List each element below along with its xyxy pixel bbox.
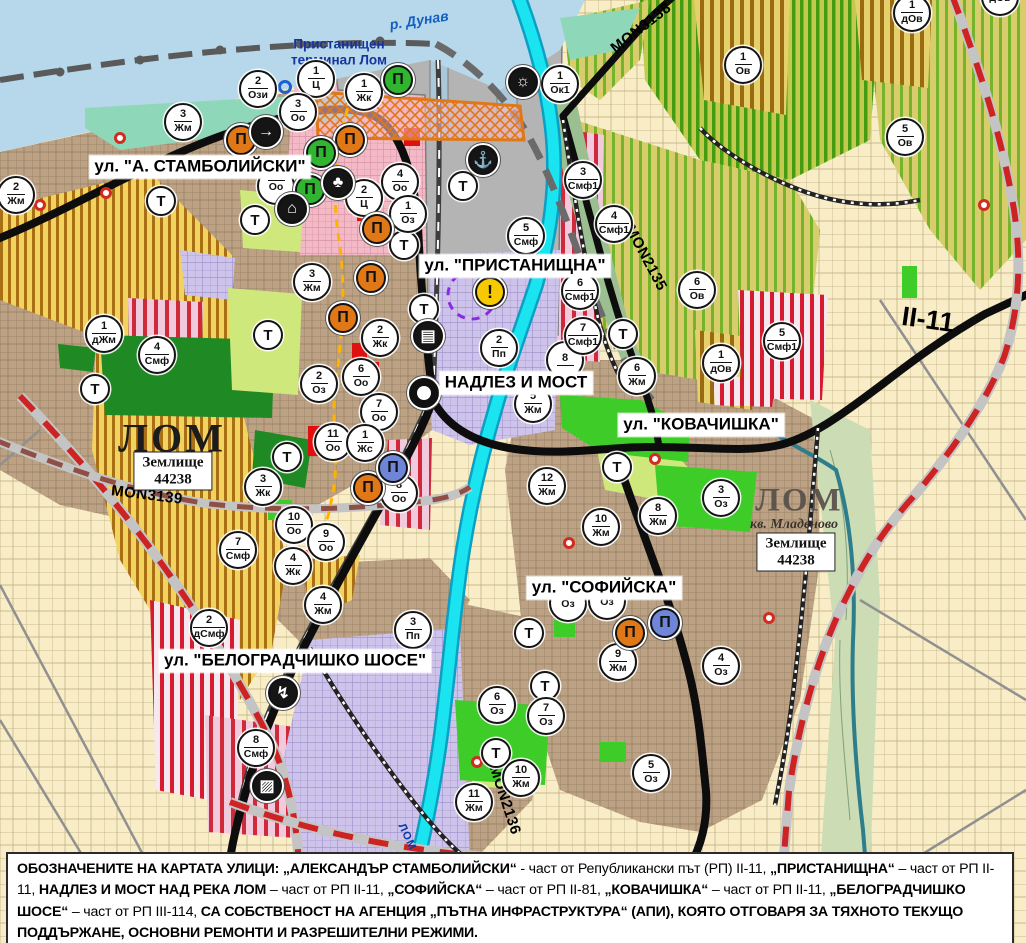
zone-number: 12	[541, 473, 553, 484]
zone-code: дОв	[901, 12, 922, 26]
zone-code: Оо	[391, 492, 408, 506]
zone-number: 2	[316, 371, 322, 382]
zemlishte-box: Землище44238	[133, 452, 212, 491]
zone-code: Жм	[465, 801, 482, 815]
terrain-t-marker: Т	[253, 320, 283, 350]
zone-marker: 3Жм	[164, 103, 202, 141]
note-segment: „КОВАЧИШКА“	[604, 882, 708, 898]
zone-number: 5	[523, 223, 529, 234]
zone-code: Оо	[268, 180, 285, 194]
bus-icon: ▤	[413, 321, 443, 351]
red-dot-icon	[563, 537, 575, 549]
terrain-t-marker: Т	[448, 171, 478, 201]
landmark-icon: Π	[650, 608, 680, 638]
zone-number: 1	[740, 52, 746, 63]
note-segment: – част от РП II-11,	[708, 882, 829, 898]
zone-marker: 6Оз	[478, 686, 516, 724]
key-icon: →	[251, 117, 281, 147]
zone-code: Оо	[318, 541, 335, 555]
zone-marker: 3Пп	[394, 611, 432, 649]
zone-number: 3	[580, 167, 586, 178]
zone-marker: 12Жм	[528, 467, 566, 505]
zone-marker: 5Смф	[507, 217, 545, 255]
zone-code: Жм	[314, 604, 331, 618]
terrain-t-marker: Т	[481, 738, 511, 768]
warning-icon: !	[475, 277, 505, 307]
zone-marker: 3Оо	[279, 93, 317, 131]
trefoil-icon: ♣	[323, 168, 353, 198]
zone-number: 5	[902, 124, 908, 135]
zone-marker: 5Оз	[632, 754, 670, 792]
note-segment: НАДЛЕЗ И МОСТ НАД РЕКА ЛОМ	[39, 882, 266, 898]
zone-marker: 4Жк	[274, 547, 312, 585]
zone-number: 1	[718, 350, 724, 361]
zone-marker: 1дЖм	[85, 315, 123, 353]
zone-marker: 9Жм	[599, 643, 637, 681]
zemlishte-box: Землище44238	[756, 533, 835, 572]
zone-code: Оз	[538, 715, 555, 729]
zone-marker: 2Оз	[300, 365, 338, 403]
zone-number: 5	[779, 328, 785, 339]
zone-marker: 3Оз	[702, 479, 740, 517]
terrain-t-marker: Т	[602, 452, 632, 482]
zone-marker: 1дОв	[702, 344, 740, 382]
street-label: ул. "БЕЛОГРАДЧИШКО ШОСЕ"	[159, 650, 431, 673]
zone-code: Жк	[356, 91, 373, 105]
terrain-t-marker: Т	[608, 319, 638, 349]
zone-code: Смф1	[767, 340, 797, 354]
zone-marker: 2Пп	[480, 329, 518, 367]
zone-marker: 1Ц	[297, 60, 335, 98]
zone-marker: 6Оо	[342, 358, 380, 396]
landmark-icon: Π	[335, 125, 365, 155]
zone-number: 9	[615, 649, 621, 660]
zone-number: 6	[577, 278, 583, 289]
zone-marker: 6Смф1	[561, 272, 599, 310]
zone-code	[557, 365, 574, 367]
landmark-icon: Π	[356, 263, 386, 293]
zone-code: Пп	[405, 629, 422, 643]
note-segment: „СОФИЙСКА“	[387, 882, 482, 898]
terrain-t-marker: Т	[80, 374, 110, 404]
legend-note: ОБОЗНАЧЕНИТЕ НА КАРТАТА УЛИЦИ: „АЛЕКСАНД…	[6, 852, 1014, 943]
zone-code: Ов	[735, 64, 752, 78]
zone-code: Жм	[592, 526, 609, 540]
zone-number: 7	[580, 323, 586, 334]
zone-number: 4	[320, 592, 326, 603]
zone-number: 1	[362, 430, 368, 441]
zone-number: 6	[358, 364, 364, 375]
zone-code: Оо	[290, 111, 307, 125]
zone-code: Ов	[897, 136, 914, 150]
zone-number: 2	[206, 615, 212, 626]
sun-icon: ☼	[508, 67, 538, 97]
zone-marker: 4Смф	[138, 336, 176, 374]
red-dot-icon	[114, 132, 126, 144]
zone-code: дОв	[989, 0, 1010, 4]
zone-number: 2	[496, 335, 502, 346]
zone-marker: 4Жм	[304, 586, 342, 624]
zone-code: Жк	[285, 565, 302, 579]
zone-code: Оз	[311, 383, 328, 397]
zone-marker: 4Смф1	[595, 205, 633, 243]
zone-number: 7	[376, 399, 382, 410]
zone-code: Ц	[356, 197, 373, 211]
zone-code: Пп	[491, 347, 508, 361]
landmark-icon: Π	[328, 303, 358, 333]
zone-code: Смф1	[568, 179, 598, 193]
zone-number: 4	[611, 211, 617, 222]
zone-number: 3	[180, 109, 186, 120]
zone-number: 7	[543, 703, 549, 714]
red-dot-icon	[100, 187, 112, 199]
zone-code: Смф1	[565, 290, 595, 304]
zone-marker: 1Оз	[389, 195, 427, 233]
zone-marker: 2Жк	[361, 319, 399, 357]
zone-number: 6	[634, 363, 640, 374]
zone-number: 5	[648, 760, 654, 771]
zone-code: Смф	[514, 235, 538, 249]
landmark-icon: Π	[615, 618, 645, 648]
zoning-map: 2Жм3Жм2Ози1Ц1Жк3Оо4Оо2Ц1ОзОо1дЖм4Смф3Жм2…	[0, 0, 1026, 943]
zone-marker: 5Смф1	[763, 322, 801, 360]
terrain-t-marker: Т	[389, 230, 419, 260]
railcross-icon: ▨	[252, 771, 282, 801]
zone-code: Смф1	[568, 335, 598, 349]
zone-marker: 6Ов	[678, 271, 716, 309]
zone-code: Оз	[489, 704, 506, 718]
note-segment: - част от Републикански път (РП) II-11,	[517, 861, 770, 877]
zone-number: 3	[309, 269, 315, 280]
zone-marker: 1Жс	[346, 424, 384, 462]
zone-code: Ц	[308, 78, 325, 92]
zone-code: Жм	[524, 403, 541, 417]
landmark-icon: Π	[353, 473, 383, 503]
zone-number: 2	[377, 325, 383, 336]
zone-marker: 8Смф	[237, 729, 275, 767]
zone-number: 2	[13, 182, 19, 193]
zone-marker: 7Смф1	[564, 317, 602, 355]
zone-code: Ок1	[550, 83, 569, 97]
zone-number: 4	[397, 169, 403, 180]
red-dot-icon	[649, 453, 661, 465]
zone-code: Смф	[145, 354, 169, 368]
terrain-t-marker: Т	[409, 294, 439, 324]
zone-code: Смф	[226, 549, 250, 563]
zone-code: Оз	[713, 497, 730, 511]
note-segment: ОБОЗНАЧЕНИТЕ НА КАРТАТА УЛИЦИ: „АЛЕКСАНД…	[17, 861, 517, 877]
blue-ring-icon	[278, 80, 292, 94]
zone-code: Жм	[609, 661, 626, 675]
note-segment: – част от РП II-81,	[482, 882, 604, 898]
street-label: ул. "СОФИЙСКА"	[527, 577, 682, 600]
red-dot-icon	[34, 199, 46, 211]
zone-code: Жс	[357, 442, 374, 456]
zone-number: 8	[562, 353, 568, 364]
zone-marker: 1Ок1	[541, 65, 579, 103]
landmark-icon: Π	[383, 65, 413, 95]
zone-code: Ози	[248, 88, 268, 102]
zone-number: 3	[410, 617, 416, 628]
zone-code: Смф	[244, 747, 268, 761]
zone-marker: 1Жк	[345, 73, 383, 111]
zone-code: Жм	[538, 485, 555, 499]
street-label: ул. "А. СТАМБОЛИЙСКИ"	[89, 156, 310, 179]
zone-marker: 6Жм	[618, 357, 656, 395]
zone-number: 7	[235, 537, 241, 548]
zone-code: Оо	[325, 441, 342, 455]
zone-code: дЖм	[92, 333, 116, 347]
zone-number: 1	[361, 79, 367, 90]
zone-code: Оо	[392, 181, 409, 195]
city-label-lom-mladenovo: ЛОМ	[755, 483, 842, 520]
note-segment: „ПРИСТАНИЩНА“	[770, 861, 895, 877]
zone-code: Жм	[7, 194, 24, 208]
zone-marker: 3Смф1	[564, 161, 602, 199]
zone-code: Оз	[400, 213, 417, 227]
zone-number: 1	[909, 0, 915, 11]
zone-number: 4	[718, 653, 724, 664]
zone-number: 10	[288, 512, 300, 523]
landmark-icon: Π	[362, 214, 392, 244]
street-label: НАДЛЕЗ И МОСТ	[440, 372, 593, 395]
zone-marker: 8Жм	[639, 497, 677, 535]
zone-code: дСмф	[193, 627, 224, 641]
zone-code: Ов	[689, 289, 706, 303]
quarter-label-mladenovo: кв. Младеново	[750, 517, 838, 533]
zone-marker: 4Оз	[702, 647, 740, 685]
zone-code: Оо	[286, 524, 303, 538]
zone-marker: 1Ов	[724, 46, 762, 84]
zone-number: 11	[327, 429, 339, 440]
red-dot-icon	[763, 612, 775, 624]
zone-marker: 3Жм	[293, 263, 331, 301]
mountain-icon: ⌂	[277, 194, 307, 224]
zone-code: Жм	[628, 375, 645, 389]
zone-marker: 2Ози	[239, 70, 277, 108]
zone-marker: 10Жм	[582, 508, 620, 546]
anchor-icon: ⚓	[468, 145, 498, 175]
zone-number: 8	[253, 735, 259, 746]
zone-number: 1	[101, 321, 107, 332]
terrain-t-marker: Т	[240, 205, 270, 235]
terrain-t-marker: Т	[146, 186, 176, 216]
zone-number: 10	[515, 765, 527, 776]
zone-number: 4	[154, 342, 160, 353]
note-segment: – част от РП II-11,	[266, 882, 387, 898]
zone-code: Жм	[303, 281, 320, 295]
zone-marker: 5Ов	[886, 118, 924, 156]
zone-code: Жм	[174, 121, 191, 135]
lightning-icon: ↯	[268, 678, 298, 708]
zone-marker: 7Оз	[527, 697, 565, 735]
zone-marker: 10Жм	[502, 759, 540, 797]
street-label: ул. "ПРИСТАНИЩНА"	[419, 255, 610, 278]
terrain-t-marker: Т	[514, 618, 544, 648]
zone-code: Смф1	[599, 223, 629, 237]
zone-number: 1	[557, 71, 563, 82]
zone-code: Жм	[512, 777, 529, 791]
zone-number: 2	[361, 185, 367, 196]
zone-number: 6	[494, 692, 500, 703]
zone-number: 4	[290, 553, 296, 564]
zone-number: 3	[260, 474, 266, 485]
zone-code: Оо	[371, 411, 388, 425]
zone-code: Оз	[643, 772, 660, 786]
junction-icon	[409, 378, 439, 408]
zone-number: 6	[694, 277, 700, 288]
zone-marker: 2дСмф	[190, 609, 228, 647]
zone-number: 10	[595, 514, 607, 525]
note-segment: – част от РП III-114,	[68, 904, 201, 920]
red-dot-icon	[978, 199, 990, 211]
zone-code: дОв	[710, 362, 731, 376]
zone-code: Жк	[372, 337, 389, 351]
zone-marker: 3Жк	[244, 468, 282, 506]
zone-number: 8	[655, 503, 661, 514]
zone-number: 3	[295, 99, 301, 110]
zone-marker: 7Смф	[219, 531, 257, 569]
street-label: ул. "КОВАЧИШКА"	[618, 414, 784, 437]
zone-number: 1	[313, 66, 319, 77]
zone-code: Жм	[649, 515, 666, 529]
zone-marker: 9Оо	[307, 523, 345, 561]
zone-number: 3	[718, 485, 724, 496]
zone-number: 9	[323, 529, 329, 540]
zone-number: 1	[405, 201, 411, 212]
zone-code: Оо	[353, 376, 370, 390]
zone-code: Оз	[713, 665, 730, 679]
zone-number: 11	[468, 789, 480, 800]
terrain-t-marker: Т	[272, 442, 302, 472]
zone-marker: 11Жм	[455, 783, 493, 821]
zone-code: Жк	[255, 486, 272, 500]
landmark-icon: Π	[378, 453, 408, 483]
zone-number: 2	[255, 76, 261, 87]
